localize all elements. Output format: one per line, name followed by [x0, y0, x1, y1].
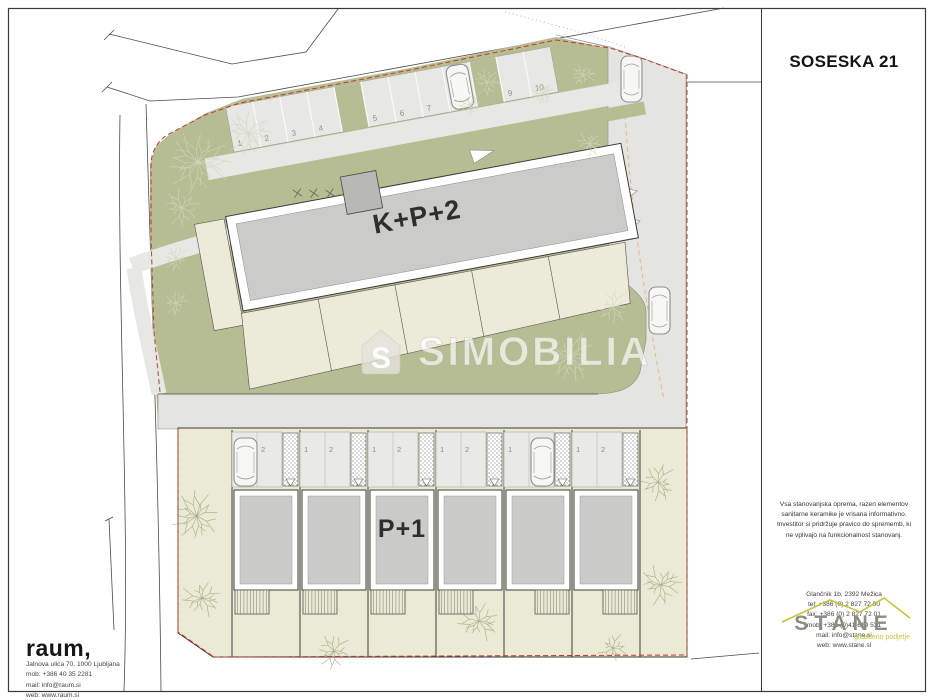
parking-space-number: 2 — [601, 445, 605, 454]
car-icon — [531, 438, 554, 486]
disclaimer-text: Vsa stanovanjska oprema, razen elementov… — [774, 500, 914, 541]
permeable-strip — [555, 433, 570, 486]
permeable-strip — [623, 433, 638, 486]
parking-space-number: 1 — [576, 445, 580, 454]
architect-mobile: mob: +386 40 35 2281 — [26, 670, 120, 680]
parking-space-number: 2 — [397, 445, 401, 454]
terrace — [235, 590, 269, 614]
parking-space-number: 2 — [261, 445, 265, 454]
watermark-logo-letter: S — [371, 342, 391, 375]
car-icon — [649, 287, 670, 334]
rowhouse-unit: 12 — [436, 432, 502, 614]
house-footprint — [580, 496, 632, 584]
rowhouse-unit: 12 — [300, 432, 366, 614]
terrace — [535, 590, 569, 614]
parking-space-number: 1 — [440, 445, 444, 454]
parking-space-number: 1 — [372, 445, 376, 454]
watermark-text: SIMOBILIA — [418, 330, 652, 374]
car-icon — [234, 438, 257, 486]
entrance — [340, 170, 382, 214]
architect-email: mail: info@raum.si — [26, 681, 120, 691]
developer-block: STANE gradbeno podjetje Glančnik 1b, 239… — [772, 590, 916, 651]
rowhouse-unit: 12 — [232, 432, 298, 614]
architect-name: raum, — [26, 636, 120, 660]
architect-web: web: www.raum.si — [26, 691, 120, 700]
plan-sheet: 12345678910 K+P+2 121212121212 P+1 S — [0, 0, 934, 700]
architect-address: Jalnova ulica 70, 1000 Ljubljana — [26, 660, 120, 670]
developer-web: web: www.stane.si — [772, 641, 916, 651]
house-footprint — [240, 496, 292, 584]
architect-block: raum, Jalnova ulica 70, 1000 Ljubljana m… — [26, 636, 120, 700]
parking-space-number: 1 — [508, 445, 512, 454]
developer-tagline: gradbeno podjetje — [854, 634, 910, 641]
parking-space-number: 2 — [465, 445, 469, 454]
terrace — [371, 590, 405, 614]
house-footprint — [308, 496, 360, 584]
house-footprint — [512, 496, 564, 584]
house-footprint — [444, 496, 496, 584]
house-footprint — [376, 496, 428, 584]
permeable-strip — [283, 433, 298, 486]
terrace — [603, 590, 637, 614]
rowhouse-unit: 12 — [368, 432, 434, 614]
developer-name: STANE — [794, 612, 894, 635]
rowhouse-unit: 12 — [572, 432, 638, 614]
terrace — [439, 590, 473, 614]
permeable-strip — [487, 433, 502, 486]
sheet-title: SOSESKA 21 — [762, 52, 926, 72]
permeable-strip — [351, 433, 366, 486]
permeable-strip — [419, 433, 434, 486]
parking-space-number: 2 — [329, 445, 333, 454]
car-icon — [621, 56, 642, 102]
parking-space-number: 1 — [304, 445, 308, 454]
developer-logo: STANE gradbeno podjetje — [772, 590, 916, 642]
terrace — [303, 590, 337, 614]
rowhouse-unit: 12 — [504, 432, 570, 614]
